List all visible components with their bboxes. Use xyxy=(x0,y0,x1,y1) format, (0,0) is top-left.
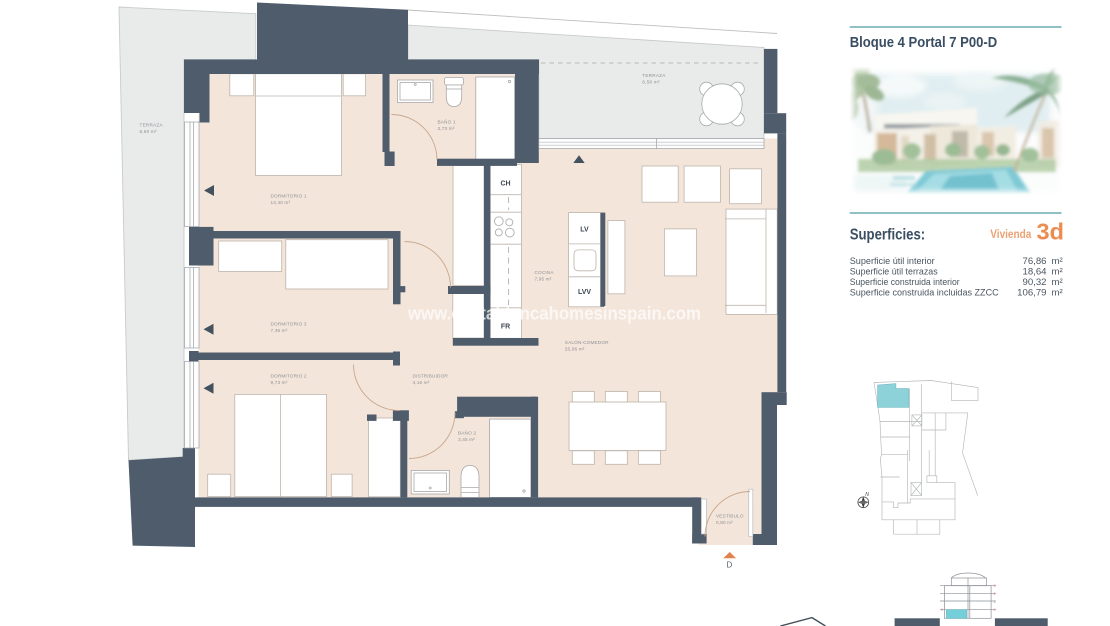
svg-text:TERRAZA: TERRAZA xyxy=(642,73,666,78)
svg-text:Superficie construida interior: Superficie construida interior xyxy=(850,277,961,288)
svg-text:4,16 m²: 4,16 m² xyxy=(413,380,430,385)
svg-text:90,32: 90,32 xyxy=(1022,277,1046,288)
svg-text:0: 0 xyxy=(941,608,943,612)
svg-text:m²: m² xyxy=(1052,256,1064,267)
svg-text:3: 3 xyxy=(994,584,996,588)
svg-text:BAÑO 2: BAÑO 2 xyxy=(458,430,476,436)
svg-text:CH: CH xyxy=(500,181,510,188)
svg-text:1: 1 xyxy=(994,600,996,604)
svg-text:8,60 m²: 8,60 m² xyxy=(140,129,158,134)
svg-text:FR: FR xyxy=(501,324,510,331)
svg-text:TERRAZA: TERRAZA xyxy=(140,123,164,128)
svg-text:2: 2 xyxy=(994,592,996,596)
svg-text:Vivienda: Vivienda xyxy=(990,229,1032,241)
svg-text:m²: m² xyxy=(1052,288,1064,299)
svg-text:BAÑO 1: BAÑO 1 xyxy=(438,119,456,125)
svg-text:9,73 m²: 9,73 m² xyxy=(271,380,288,385)
svg-text:Bloque 4 Portal 7 P00-D: Bloque 4 Portal 7 P00-D xyxy=(850,35,998,51)
svg-text:7,95 m²: 7,95 m² xyxy=(535,277,552,282)
svg-text:COCINA: COCINA xyxy=(535,270,555,275)
svg-text:3,45 m²: 3,45 m² xyxy=(458,437,475,442)
svg-text:Superficies:: Superficies: xyxy=(850,227,926,244)
svg-text:Superficie útil interior: Superficie útil interior xyxy=(850,256,936,267)
svg-text:18,64: 18,64 xyxy=(1022,267,1047,278)
svg-text:DORMITORIO 2: DORMITORIO 2 xyxy=(271,374,307,379)
svg-text:VESTIBULO: VESTIBULO xyxy=(716,514,744,519)
svg-text:Superficie útil terrazas: Superficie útil terrazas xyxy=(850,267,938,278)
svg-text:25,06 m²: 25,06 m² xyxy=(565,347,585,352)
svg-text:LV: LV xyxy=(580,227,589,234)
svg-text:14,40 m²: 14,40 m² xyxy=(271,200,291,205)
svg-text:106,79: 106,79 xyxy=(1017,288,1046,299)
svg-text:m²: m² xyxy=(1052,277,1064,288)
svg-text:8,58 m²: 8,58 m² xyxy=(642,80,660,85)
svg-text:LVV: LVV xyxy=(578,289,591,296)
svg-text:www.costablancahomesinspain.co: www.costablancahomesinspain.com xyxy=(407,304,701,324)
svg-text:DISTRIBUIDOR: DISTRIBUIDOR xyxy=(413,374,449,379)
svg-text:N: N xyxy=(865,492,869,498)
svg-text:DORMITORIO 1: DORMITORIO 1 xyxy=(271,194,307,199)
svg-text:0: 0 xyxy=(994,608,996,612)
svg-text:m²: m² xyxy=(1052,267,1064,278)
svg-text:SALÓN-COMEDOR: SALÓN-COMEDOR xyxy=(565,339,609,345)
svg-text:3,73 m²: 3,73 m² xyxy=(438,126,455,131)
svg-text:7,36 m²: 7,36 m² xyxy=(271,328,288,333)
svg-text:DORMITORIO 3: DORMITORIO 3 xyxy=(271,322,307,327)
svg-text:D: D xyxy=(727,561,733,570)
svg-text:Superficie construida incluida: Superficie construida incluidas ZZCC xyxy=(850,288,999,299)
svg-text:3d: 3d xyxy=(1037,219,1064,245)
svg-text:0,80 m²: 0,80 m² xyxy=(716,520,733,525)
svg-text:76,86: 76,86 xyxy=(1022,256,1046,267)
